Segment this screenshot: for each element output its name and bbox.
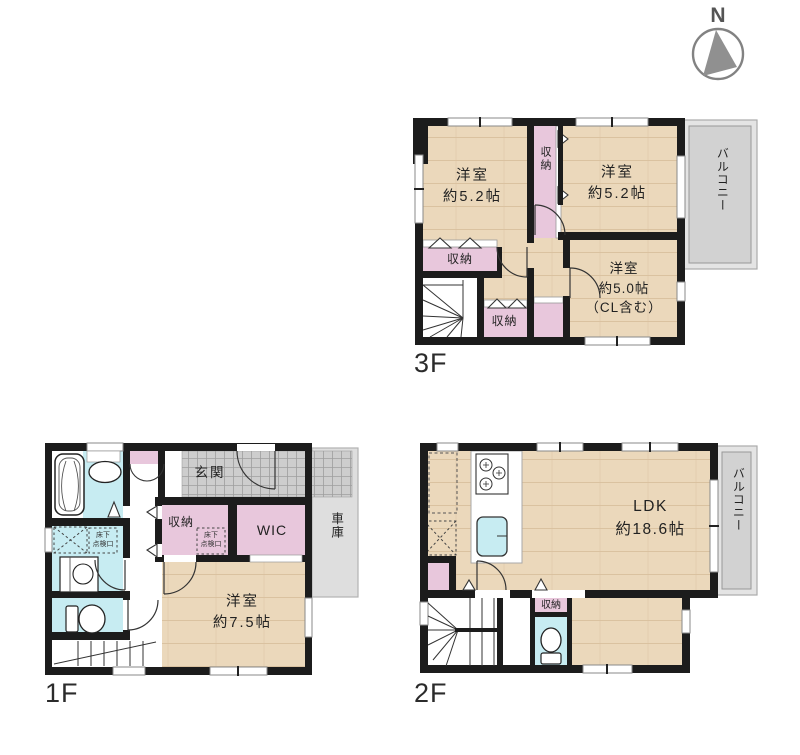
compass-icon: [693, 29, 743, 79]
balcony-label-2f: バルコニー: [729, 467, 746, 532]
wic-label-1f: WIC: [243, 520, 301, 540]
closet-bottom-3f: 収納: [482, 313, 527, 330]
closet-mid-3f: 収納: [536, 146, 552, 172]
kitchen-counter: [471, 451, 522, 563]
compass-north-label: N: [706, 1, 730, 31]
stove-icon: [476, 454, 508, 494]
closet-label-1f: 収納: [160, 514, 202, 531]
garage-label-1f: 車庫: [327, 512, 345, 539]
closet-label-2f: 収納: [535, 599, 567, 614]
entrance-label-1f: 玄関: [186, 463, 234, 483]
floor-label-2f: 2F: [414, 674, 448, 713]
floor2-stairs: [428, 598, 503, 666]
floor2-plan: [420, 442, 757, 674]
toilet-icon: [66, 605, 105, 633]
floor2-backroom-floor: [572, 598, 682, 665]
room-ldk-2f: LDK約18.6帖: [593, 495, 708, 542]
floor-hatch-label-side: 床下点検口: [89, 531, 117, 549]
room-bedroom-right-3f: 洋室約5.2帖: [570, 163, 665, 205]
floorplan-canvas: N 洋室約5.2帖 洋室約5.2帖 洋室約5.0帖（CL含む） 収納 収納 収納…: [0, 0, 800, 755]
floor-label-1f: 1F: [45, 674, 79, 713]
closet-left-3f: 収納: [423, 251, 497, 268]
floor1-stairs: [54, 641, 156, 666]
toilet-icon: [541, 628, 561, 664]
sink-icon: [477, 517, 507, 556]
floor-hatch-label-front: 床下点検口: [197, 531, 225, 549]
washbasin-icon: [89, 462, 121, 483]
room-bedroom-left-3f: 洋室約5.2帖: [425, 166, 520, 208]
vanity-icon: [60, 557, 98, 592]
bathtub-icon: [55, 454, 84, 515]
room-bedroom-1f: 洋室約7.5帖: [190, 592, 295, 634]
floor-label-3f: 3F: [414, 344, 448, 383]
balcony-label-3f: バルコニー: [713, 147, 730, 212]
room-bedroom-back-3f: 洋室約5.0帖（CL含む）: [563, 259, 685, 318]
floorplan-drawing: [0, 0, 800, 755]
